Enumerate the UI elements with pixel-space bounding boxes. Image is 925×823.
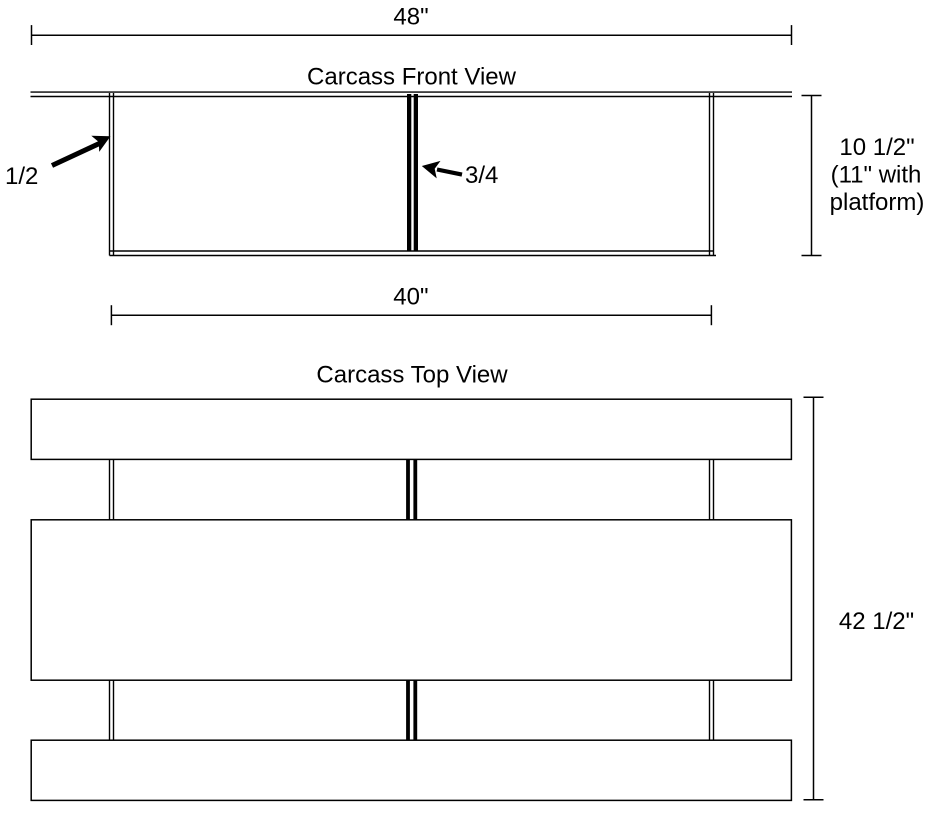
svg-text:Carcass Top View: Carcass Top View [316,362,508,389]
svg-text:Carcass Front View: Carcass Front View [307,64,517,91]
svg-text:40": 40" [393,284,428,311]
svg-text:(11" with: (11" with [831,162,922,189]
svg-text:1/2: 1/2 [5,163,38,190]
svg-text:3/4: 3/4 [465,162,498,189]
svg-text:42 1/2": 42 1/2" [839,608,914,635]
svg-text:48": 48" [393,4,428,31]
svg-text:platform): platform) [830,189,925,216]
svg-text:10 1/2": 10 1/2" [839,134,914,161]
